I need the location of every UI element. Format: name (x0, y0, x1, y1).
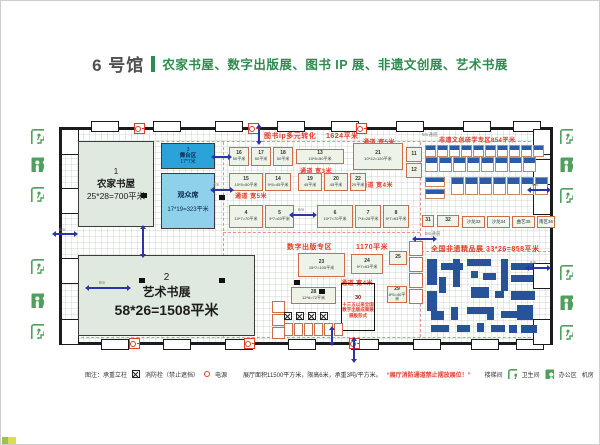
stall-header (510, 146, 519, 150)
booth: 410*7=70平米 (229, 205, 263, 228)
dimension-label: 4m (213, 182, 219, 187)
mini-stall (451, 177, 464, 195)
stairs-icon (31, 324, 44, 339)
mini-stall (495, 157, 508, 172)
stall-header (494, 178, 505, 184)
furniture-block (439, 277, 446, 293)
furniture-block (495, 291, 504, 298)
direction-arrow (529, 267, 547, 269)
stall-header (480, 178, 491, 184)
stall-header (438, 146, 447, 150)
stall-header (452, 178, 463, 184)
furniture-block (427, 259, 437, 285)
legend-prefix: 图注：承重立柱 (85, 370, 127, 379)
mini-stall (465, 177, 478, 195)
mini-stall (493, 177, 506, 195)
column-icon (284, 312, 292, 320)
wall-left (59, 127, 62, 345)
booth: 11 (406, 147, 422, 162)
wc-icon (560, 157, 573, 172)
door (163, 339, 191, 350)
stall-header (510, 158, 521, 163)
mini-stall (449, 145, 460, 157)
stall-header (508, 178, 519, 184)
mini-stall (473, 145, 484, 157)
door (396, 121, 424, 132)
stall-header (482, 158, 493, 163)
booth-23: 2315*7=105平米 (298, 253, 345, 277)
stall-cell (294, 323, 303, 336)
direction-arrow (142, 229, 144, 254)
page-title: 6 号馆 农家书屋、数字出版展、图书 IP 展、非遗文创展、艺术书展 (1, 51, 599, 76)
direction-arrow (353, 341, 355, 359)
legend-office-label: 办公区 (559, 370, 577, 379)
stall-header (474, 146, 483, 150)
stairs-icon (560, 188, 573, 203)
hydrant-box-icon (319, 289, 325, 294)
dimension-label: 8m (99, 280, 105, 285)
salon-booth: 曲艺35 (512, 216, 535, 228)
zone-area-book-ip: 1624平米 (326, 131, 359, 141)
direction-arrow (215, 156, 228, 158)
heritage-stall-row-2 (425, 157, 536, 172)
dimension-label: 5m通道 (422, 132, 437, 138)
stall-cell (304, 323, 313, 336)
stall-cell (409, 241, 423, 256)
door (91, 121, 119, 132)
hall-number: 6 号馆 (92, 51, 144, 76)
stairs-icon (560, 265, 573, 280)
legend-stairs-label: 楼梯间 (485, 370, 503, 379)
booth: 12 (406, 163, 422, 178)
direction-arrow (89, 287, 127, 289)
stall-cell (334, 323, 343, 336)
mini-stall (509, 157, 522, 172)
booth: 2220平米 (350, 173, 366, 191)
door (61, 319, 79, 345)
zone-name: 艺术书展 (142, 283, 190, 300)
mini-stall (479, 177, 492, 195)
booth: 610*7=70平米 (317, 205, 353, 228)
stall-header (534, 146, 543, 150)
cell-strip-mid (409, 241, 423, 304)
mini-stall (461, 145, 472, 157)
column-icon (132, 370, 140, 378)
booth-32: 32 (437, 215, 459, 227)
booth-col-11-12: 1112 (406, 147, 422, 178)
mini-stall (509, 145, 520, 157)
zone-label-boutique: 全国非遗精品展 33*26=858平米 (431, 244, 540, 254)
booth-row-b2: 1945平米2045平米2220平米 (298, 173, 366, 189)
booth-30-exhibit: 30 十三五以来全国 数字出版成果展 展板形式 (341, 283, 375, 331)
dimension-label: 9m通道 (425, 231, 440, 237)
aisle-label: 通道 宽5米 (235, 191, 267, 200)
door (463, 121, 491, 132)
zone-size: 17*19=323平米 (167, 204, 208, 213)
zone-label-digital: 数字出版专区 (287, 242, 332, 252)
dimension-label: 6m (530, 260, 536, 265)
furniture-block (511, 275, 533, 282)
stall-cell (314, 323, 323, 336)
booth-13: 1310*5=50平米 (296, 149, 344, 164)
stall-header (426, 158, 437, 163)
zone-label-book-ip: 图书ip多元转化 (264, 131, 316, 141)
wc-icon (31, 157, 44, 172)
zone-farm-bookhouse: 1 农家书屋 25*28=700平米 (78, 141, 154, 227)
mini-stall (507, 177, 520, 195)
stall-header (454, 158, 465, 163)
direction-arrow (214, 189, 230, 191)
column-icon (308, 312, 316, 320)
power-icon (204, 371, 210, 377)
booth: 1850平米 (273, 147, 293, 166)
door (61, 129, 79, 155)
stall-header (440, 158, 451, 163)
furniture-block (471, 287, 489, 298)
door (101, 339, 129, 350)
furniture-block (477, 323, 484, 332)
wc-icon (31, 293, 44, 308)
booth-row-c: 410*7=70平米59*7=63平米 (229, 205, 294, 226)
zone-name: 农家书屋 (97, 176, 135, 190)
door (215, 121, 243, 132)
booth: 89*7=63平米 (383, 205, 409, 228)
furniture-block (467, 307, 487, 314)
mini-stall (533, 145, 544, 157)
mini-stall (437, 145, 448, 157)
stall-cell (409, 289, 423, 304)
furniture-block (501, 259, 508, 291)
hydrant-box-icon (219, 278, 225, 283)
mini-stall (453, 157, 466, 172)
mini-stall (467, 157, 480, 172)
legend-power-label: 电源 (215, 370, 227, 379)
booth: 149*5=45平米 (265, 173, 291, 191)
stall-header (486, 146, 495, 150)
stall-header (426, 146, 435, 150)
mini-stall (439, 157, 452, 172)
hydrant-box-icon (139, 278, 145, 283)
wc-icon (560, 295, 573, 310)
stairs-icon (31, 259, 44, 274)
booth-row-c2: 610*7=70平米77*4=28平米89*7=63平米 (317, 205, 409, 226)
dimension-label: 6m (59, 227, 65, 232)
door (61, 258, 79, 284)
stall-header (498, 146, 507, 150)
booth-21: 2110*12=120平米 (353, 143, 403, 170)
zone-label-heritage: 非遗文创研学专区854平米 (439, 135, 516, 144)
stage-area: 3 舞台区 17*7米 (161, 143, 215, 169)
heritage-stall-row-1 (425, 145, 544, 157)
direction-arrow (531, 189, 547, 191)
booth: 2045平米 (324, 173, 348, 191)
zone-art-book-expo: 2 艺术书展 58*26=1508平米 (78, 255, 255, 336)
direction-arrow (331, 330, 333, 342)
salon-booth: 沙龙34 (487, 216, 510, 228)
legend: 图注：承重立柱 消防栓（禁止遮挡） 电源 展厅面积11500平方米，限高6米，承… (85, 367, 600, 381)
furniture-block (467, 259, 491, 266)
furniture-block (521, 325, 537, 333)
zone-name: 观众席 (178, 190, 199, 200)
furniture-block (483, 273, 496, 280)
furniture-block (427, 291, 437, 311)
furniture-block (491, 325, 505, 332)
zone-divider (223, 232, 420, 233)
stall-header (466, 178, 477, 184)
mini-stall (425, 177, 445, 187)
mini-stall (425, 157, 438, 172)
legend-machine-label: 机房 (582, 370, 594, 379)
furniture-block (453, 259, 460, 287)
stall-header (462, 146, 471, 150)
stall-header (522, 146, 531, 150)
zone-size: 25*28=700平米 (87, 190, 145, 202)
door (61, 188, 79, 214)
stall-cell (409, 273, 423, 288)
stall-header (524, 158, 535, 163)
stairs-icon (508, 369, 517, 379)
stall-header (496, 158, 507, 163)
legend-specs: 展厅面积11500平方米，限高6米，承重3吨/平方米。 (243, 370, 382, 379)
column-icon (296, 312, 304, 320)
door (153, 121, 181, 132)
booth: 1650平米 (229, 147, 249, 166)
furniture-block (431, 311, 444, 320)
stall-header (450, 146, 459, 150)
furniture-block (471, 271, 478, 278)
fire-hydrant-icon (244, 338, 255, 349)
furniture-block (431, 325, 449, 332)
booth-25: 25 (389, 251, 407, 265)
door (471, 339, 499, 350)
column-icon (320, 312, 328, 320)
legend-hydrant-label: 消防栓（禁止遮挡） (145, 370, 199, 379)
direction-arrow (258, 128, 260, 141)
dimension-label: 6m (532, 182, 538, 187)
door (413, 339, 441, 350)
mini-stall (485, 145, 496, 157)
booth-24: 249*7=63平米 (351, 254, 383, 274)
stall-header (468, 158, 479, 163)
hydrant-box-icon (219, 195, 225, 200)
salon-row: 沙龙33沙龙34曲艺35南区36 (462, 216, 555, 228)
fire-hydrant-icon (129, 338, 140, 349)
corner-chip (2, 437, 16, 445)
zone-number: 1 (114, 167, 118, 176)
legend-wc-label: 卫生间 (522, 370, 540, 379)
zone-size: 58*26=1508平米 (115, 300, 219, 320)
mini-stall (497, 145, 508, 157)
booth-row-b: 1510*5=50平米149*5=45平米 (229, 173, 291, 189)
booth-31: 31 (422, 215, 434, 227)
stairs-icon (31, 187, 44, 202)
furniture-block (509, 325, 517, 333)
furniture-block (457, 325, 470, 332)
wc-icon (545, 369, 554, 379)
hydrant-box-icon (294, 280, 300, 285)
floorplan-page: 6 号馆 农家书屋、数字出版展、图书 IP 展、非遗文创展、艺术书展 (0, 0, 600, 445)
door (288, 339, 316, 350)
stall-cell (409, 257, 423, 272)
legend-warning: “展厅消防通道禁止摆放展位！” (387, 370, 471, 379)
title-divider-bar (151, 56, 155, 72)
zone-size: 17*7米 (180, 159, 195, 165)
furniture-block (511, 291, 535, 300)
furniture-block (451, 307, 458, 320)
stairs-icon (560, 325, 573, 340)
mini-stall (425, 189, 445, 199)
direction-arrow (56, 233, 74, 235)
salon-booth: 南区36 (537, 216, 555, 228)
booth-row-a: 1650平米1750平米1850平米 (229, 147, 293, 164)
direction-arrow (293, 214, 313, 216)
stairs-icon (31, 129, 44, 144)
mini-stall (425, 145, 436, 157)
booth: 1945平米 (298, 173, 322, 191)
audience-area: 观众席 17*19=323平米 (161, 173, 215, 229)
booth-29: 298*5=40平米 (387, 286, 407, 303)
furniture-block (487, 307, 494, 320)
mini-stall (481, 157, 494, 172)
booth: 1750平米 (251, 147, 271, 166)
furniture-block (517, 305, 533, 320)
stairs-icon (560, 129, 573, 144)
fire-hydrant-icon (134, 123, 145, 134)
zone-area-digital: 1170平米 (356, 242, 388, 252)
direction-arrow (416, 238, 433, 240)
booth: 77*4=28平米 (355, 205, 381, 228)
mini-stall (521, 145, 532, 157)
booth-28: 2812*6=72平米 (291, 287, 336, 304)
salon-booth: 沙龙33 (462, 216, 485, 228)
zone-number: 2 (164, 272, 170, 283)
stall-cell (284, 323, 293, 336)
hall-subtitle: 农家书屋、数字出版展、图书 IP 展、非遗文创展、艺术书展 (162, 54, 508, 73)
hydrant-box-icon (141, 193, 147, 198)
booth: 1510*5=50平米 (229, 173, 263, 191)
mini-stall (523, 157, 536, 172)
dimension-label: 6m (298, 207, 304, 212)
